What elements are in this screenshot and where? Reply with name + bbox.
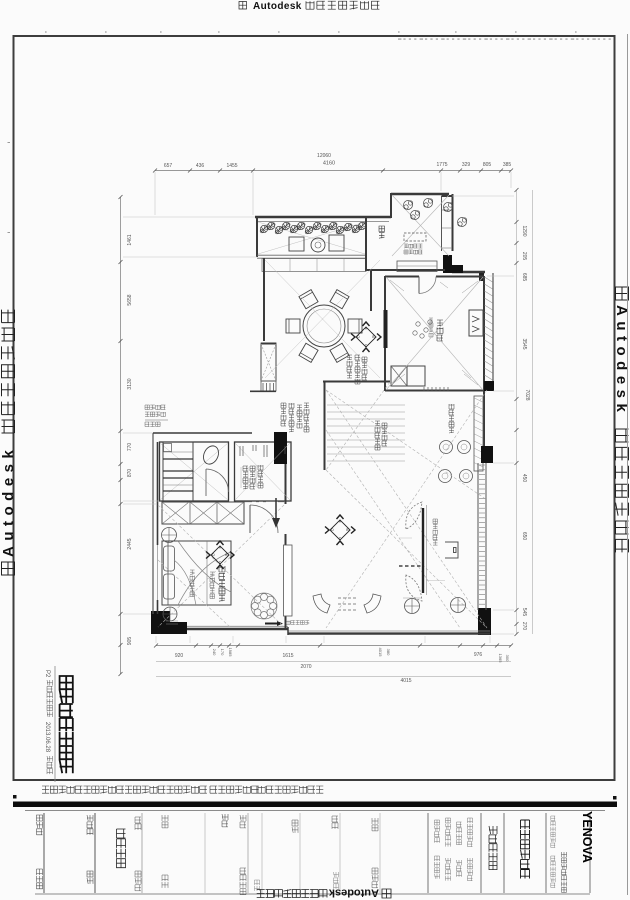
- svg-text:300: 300: [505, 655, 510, 662]
- svg-text:1985: 1985: [228, 648, 233, 658]
- svg-text:870: 870: [127, 469, 133, 478]
- svg-text:1365: 1365: [498, 654, 503, 664]
- svg-text:2445: 2445: [127, 538, 133, 549]
- svg-text:270: 270: [521, 622, 527, 631]
- svg-text:2070: 2070: [300, 664, 311, 670]
- svg-text:380: 380: [386, 649, 391, 656]
- svg-text:D: D: [331, 528, 334, 532]
- svg-text:YENOVA: YENOVA: [580, 811, 594, 863]
- svg-text:450: 450: [521, 474, 527, 483]
- svg-text:4015: 4015: [400, 678, 411, 684]
- svg-text:2013.06.28: 2013.06.28: [44, 722, 50, 753]
- svg-text:1775: 1775: [436, 162, 447, 168]
- svg-text:B: B: [372, 335, 374, 339]
- svg-text:770: 770: [127, 443, 133, 452]
- svg-text:D: D: [357, 335, 360, 339]
- svg-text:1290: 1290: [521, 225, 527, 236]
- svg-text:329: 329: [462, 162, 471, 168]
- svg-text:170: 170: [220, 649, 225, 656]
- svg-text:805: 805: [483, 162, 492, 168]
- svg-text:4015: 4015: [378, 648, 383, 658]
- svg-text:436: 436: [196, 163, 205, 169]
- svg-text:D: D: [212, 553, 215, 557]
- svg-text:976: 976: [474, 652, 483, 658]
- svg-text:1455: 1455: [226, 163, 237, 169]
- svg-text:4160: 4160: [323, 161, 335, 167]
- svg-text:Autodesk: Autodesk: [328, 887, 379, 899]
- svg-text:Autodesk: Autodesk: [253, 1, 302, 12]
- svg-text:685: 685: [521, 273, 527, 282]
- svg-text:12060: 12060: [317, 153, 331, 159]
- svg-text:3130: 3130: [127, 378, 133, 389]
- svg-text:1461: 1461: [127, 234, 133, 245]
- svg-text:Autodesk: Autodesk: [0, 445, 17, 557]
- svg-text:B: B: [225, 553, 227, 557]
- svg-text:B: B: [346, 528, 348, 532]
- svg-text:650: 650: [521, 532, 527, 541]
- svg-text:3545: 3545: [521, 338, 527, 349]
- svg-text:205: 205: [521, 252, 527, 261]
- svg-text:5658: 5658: [127, 294, 133, 305]
- svg-text:7028: 7028: [524, 389, 530, 400]
- svg-text:657: 657: [164, 163, 173, 169]
- svg-text:905: 905: [127, 637, 133, 646]
- svg-text:240: 240: [212, 649, 217, 656]
- svg-text:920: 920: [175, 653, 184, 659]
- svg-text:385: 385: [503, 162, 512, 168]
- svg-text:545: 545: [521, 608, 527, 617]
- svg-text:P2: P2: [44, 670, 50, 678]
- svg-text:1615: 1615: [282, 653, 293, 659]
